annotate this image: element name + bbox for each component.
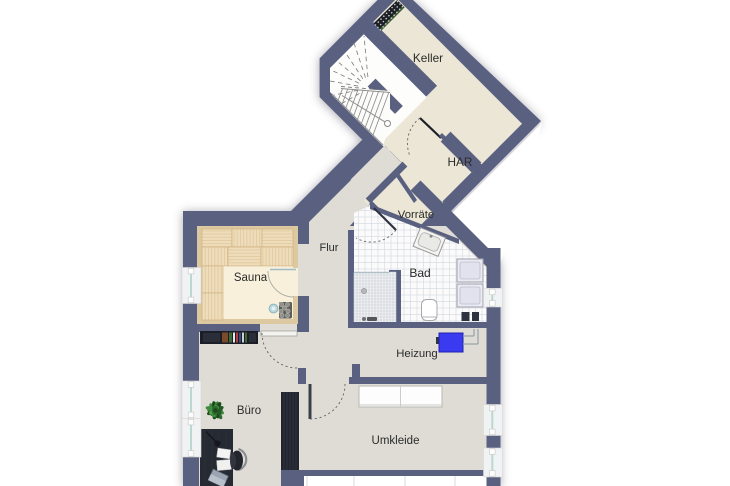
svg-text:Keller: Keller [413, 51, 443, 65]
svg-text:Büro: Büro [237, 405, 261, 417]
svg-text:Bad: Bad [409, 266, 430, 280]
svg-text:Flur: Flur [320, 242, 339, 254]
svg-text:HAR: HAR [448, 155, 473, 169]
svg-text:Heizung: Heizung [396, 348, 437, 360]
svg-text:Vorräte: Vorräte [398, 209, 434, 221]
svg-text:Umkleide: Umkleide [372, 435, 420, 447]
svg-text:Sauna: Sauna [234, 272, 268, 284]
